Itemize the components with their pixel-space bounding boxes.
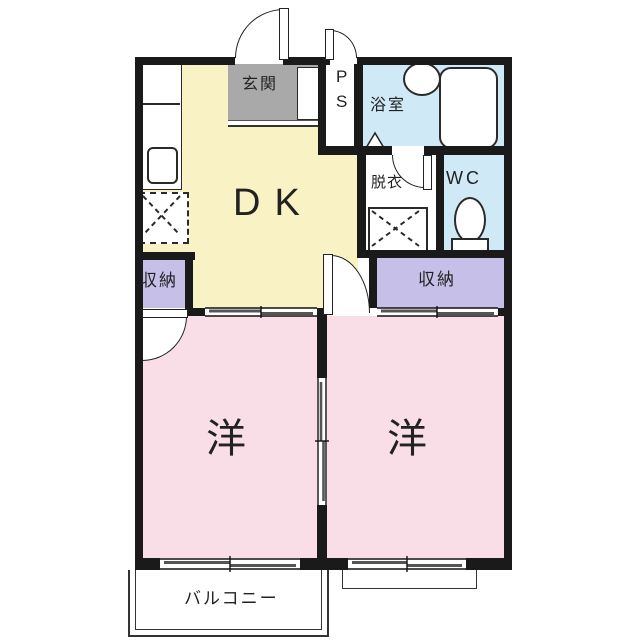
refrigerator-x-mark bbox=[141, 194, 182, 237]
sliding-door-between-rooms bbox=[315, 378, 329, 505]
ps-door-swing bbox=[330, 30, 357, 58]
dressing-room-label: 脱衣 bbox=[371, 175, 403, 192]
sliding-door-dk-room-left bbox=[205, 306, 317, 318]
room-right-door-leaf bbox=[323, 254, 333, 315]
balcony-label: バルコニー bbox=[184, 590, 279, 609]
wall-closet-left-bottom-b bbox=[186, 308, 205, 316]
window-room-right bbox=[348, 556, 466, 572]
western-room-left-label: 洋 bbox=[206, 417, 246, 461]
wall-dk-dressing bbox=[357, 155, 366, 258]
wall-genkan-ps bbox=[318, 64, 326, 155]
genkan-label: 玄関 bbox=[242, 76, 278, 94]
wall-top-left bbox=[135, 57, 235, 65]
wall-bath-bottom-right bbox=[424, 146, 512, 155]
wc-label: WC bbox=[446, 169, 482, 189]
ps-label-line2: S bbox=[336, 93, 347, 112]
wall-middle-top bbox=[317, 308, 327, 378]
wall-dressing-wc bbox=[436, 155, 444, 258]
wash-basin bbox=[403, 62, 441, 96]
washing-machine-x-mark bbox=[370, 209, 421, 248]
floorplan: 玄関 P S 浴室 脱衣 WC DK 収納 収納 洋 洋 バルコニー bbox=[0, 0, 640, 640]
ps-label-line1: P bbox=[336, 68, 347, 87]
wall-dressing-bottom bbox=[357, 250, 512, 258]
shoe-cabinet bbox=[297, 67, 320, 120]
dressing-room-door-leaf bbox=[423, 155, 432, 190]
entrance-door-swing bbox=[235, 9, 284, 58]
wall-bottom-left bbox=[135, 558, 160, 570]
bathroom-label: 浴室 bbox=[370, 97, 406, 115]
wall-middle-bottom bbox=[317, 505, 327, 570]
sliding-door-closet-right bbox=[377, 306, 498, 318]
wall-closet-left-side bbox=[185, 252, 193, 316]
western-room-right-label: 洋 bbox=[387, 417, 427, 461]
wall-bottom-right bbox=[466, 558, 512, 570]
wall-bath-bottom-left bbox=[318, 146, 392, 155]
dk-label: DK bbox=[233, 183, 314, 225]
washing-machine-space bbox=[368, 207, 428, 255]
closet-left-door-leaf bbox=[142, 309, 188, 318]
window-room-left bbox=[160, 556, 300, 572]
wall-top-right bbox=[357, 57, 512, 65]
genkan-step bbox=[228, 120, 318, 127]
closet-right-label: 収納 bbox=[418, 271, 456, 290]
window-ledge-right bbox=[342, 570, 477, 589]
room-right-door-swing bbox=[331, 255, 370, 313]
entrance-door-leaf bbox=[279, 8, 289, 60]
bathtub bbox=[439, 67, 498, 149]
kitchen-counter-divider bbox=[142, 103, 180, 105]
closet-left-label: 収納 bbox=[140, 272, 178, 291]
wall-closet-left-bottom-a bbox=[135, 308, 142, 316]
wall-ps-bath bbox=[354, 64, 363, 155]
wall-closet-right-side bbox=[369, 258, 377, 308]
toilet-bowl bbox=[454, 197, 486, 243]
ps-door-leaf bbox=[325, 29, 334, 60]
wall-room-right-top-corner bbox=[498, 308, 512, 316]
kitchen-sink bbox=[147, 147, 178, 184]
refrigerator-space bbox=[139, 192, 189, 244]
